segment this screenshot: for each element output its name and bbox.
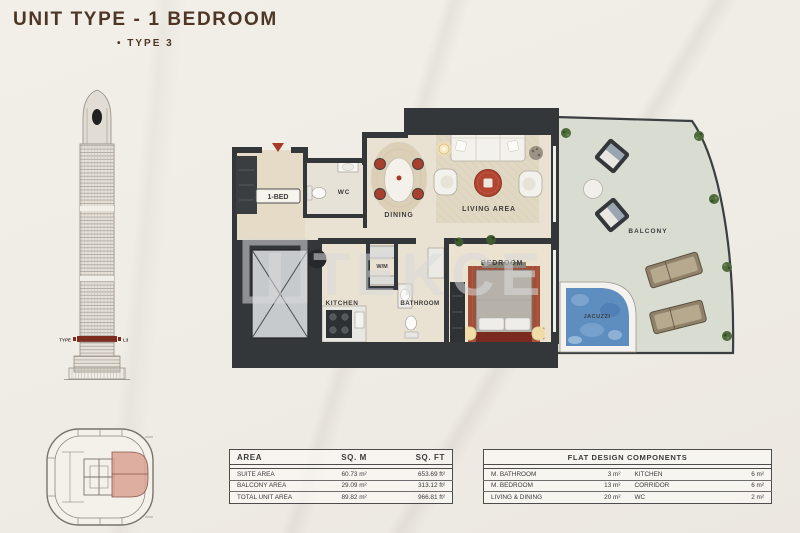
floor-plan: 1-BED WC DINING LIVING AREA KITCHEN W/M … <box>232 108 733 368</box>
stove <box>326 310 352 338</box>
table-row: SUITE AREA 60.73 m² 653.69 ft² <box>230 469 453 481</box>
table-cell: 20 m² <box>556 492 628 504</box>
living-plant <box>529 146 543 160</box>
table-cell: 2 m² <box>700 492 772 504</box>
table-cell: 29.09 m² <box>320 480 388 492</box>
room-label-dining: DINING <box>384 212 413 219</box>
table-cell: CORRIDOR <box>628 480 700 492</box>
table-cell: M. BEDROOM <box>484 480 556 492</box>
table-row: M. BEDROOM 13 m² CORRIDOR 6 m² <box>484 480 772 492</box>
table-cell: KITCHEN <box>628 469 700 481</box>
wall-bottom-band <box>232 342 558 368</box>
armchair-right <box>519 171 542 197</box>
room-label-living: LIVING AREA <box>462 206 516 213</box>
entry-closet <box>236 156 257 214</box>
table-cell: LIVING & DINING <box>484 492 556 504</box>
room-label-entry: 1-BED <box>267 194 288 201</box>
watermark-text: TEKCE <box>313 241 546 308</box>
tower-level-label-right: L3 <box>123 338 129 343</box>
table-cell: 89.82 m² <box>320 492 388 504</box>
bedside-lamp-right <box>532 327 546 341</box>
room-label-wc: WC <box>338 189 350 196</box>
key-plan <box>47 429 153 525</box>
wall-top-band <box>404 108 556 135</box>
table-cell: 966.81 ft² <box>388 492 453 504</box>
bedroom-window <box>553 250 556 332</box>
table-cell: SUITE AREA <box>230 469 321 481</box>
room-label-jacuzzi: JACUZZI <box>584 314 611 320</box>
table-cell: 60.73 m² <box>320 469 388 481</box>
kitchen-sink <box>355 312 364 328</box>
table-cell: BALCONY AREA <box>230 480 321 492</box>
brochure-page: UNIT TYPE - 1 BEDROOM • TYPE 3 <box>0 0 800 533</box>
area-table-header: AREA <box>230 450 321 465</box>
kitchen-counter <box>322 306 366 342</box>
table-cell: 13 m² <box>556 480 628 492</box>
table-cell: 653.69 ft² <box>388 469 453 481</box>
tower-highlight-floor <box>77 336 117 342</box>
tower-level-label-left: TYPE <box>59 338 71 343</box>
armchair-left <box>434 169 457 195</box>
tower-crown-window <box>92 109 102 125</box>
area-table-header: SQ. M <box>320 450 388 465</box>
living-window <box>553 146 556 222</box>
coffee-table <box>475 170 502 197</box>
table-cell: M. BATHROOM <box>484 469 556 481</box>
table-row: BALCONY AREA 29.09 m² 313.12 ft² <box>230 480 453 492</box>
table-cell: 6 m² <box>700 480 772 492</box>
room-label-balcony: BALCONY <box>628 228 667 235</box>
floor-lamp <box>436 141 452 157</box>
tower-elevation: TYPE L3 <box>59 90 130 380</box>
table-cell: TOTAL UNIT AREA <box>230 492 321 504</box>
table-cell: 6 m² <box>700 469 772 481</box>
components-table-title: FLAT DESIGN COMPONENTS <box>484 450 772 465</box>
table-row: LIVING & DINING 20 m² WC 2 m² <box>484 492 772 504</box>
table-cell: 3 m² <box>556 469 628 481</box>
table-row: TOTAL UNIT AREA 89.82 m² 966.81 ft² <box>230 492 453 504</box>
area-table: AREA SQ. M SQ. FT SUITE AREA 60.73 m² 65… <box>229 449 453 504</box>
key-plan-unit-highlight <box>112 452 148 497</box>
balcony-side-table <box>584 180 603 199</box>
table-row: M. BATHROOM 3 m² KITCHEN 6 m² <box>484 469 772 481</box>
table-cell: 313.12 ft² <box>388 480 453 492</box>
sofa <box>451 131 525 161</box>
table-cell: WC <box>628 492 700 504</box>
components-table: FLAT DESIGN COMPONENTS M. BATHROOM 3 m² … <box>483 449 772 504</box>
area-table-header: SQ. FT <box>388 450 453 465</box>
